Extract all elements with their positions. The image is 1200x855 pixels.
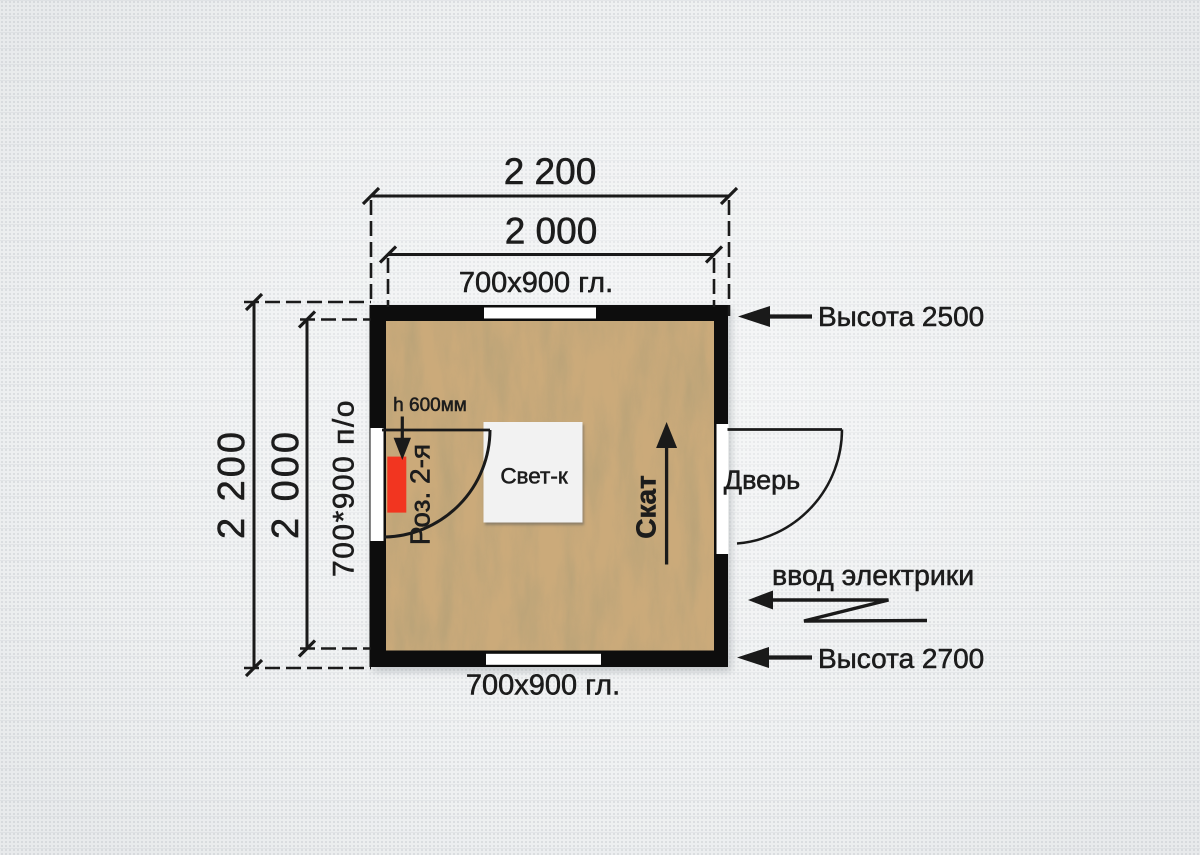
svg-text:700*900 п/о: 700*900 п/о [328,399,361,577]
svg-text:Дверь: Дверь [724,465,800,495]
svg-text:Роз. 2-я: Роз. 2-я [405,444,436,545]
svg-text:2 200: 2 200 [504,151,597,192]
svg-text:700x900 гл.: 700x900 гл. [459,267,613,299]
svg-text:Высота 2700: Высота 2700 [818,643,984,674]
svg-text:h 600мм: h 600мм [393,395,467,416]
svg-text:Свет-к: Свет-к [500,464,568,489]
svg-text:700x900 гл.: 700x900 гл. [466,670,620,702]
svg-text:2 200: 2 200 [211,429,253,539]
svg-text:ввод электрики: ввод электрики [772,560,974,592]
svg-text:2 000: 2 000 [505,211,598,252]
svg-text:Скат: Скат [631,475,662,539]
svg-text:2 000: 2 000 [265,429,307,539]
svg-text:Высота 2500: Высота 2500 [818,301,984,332]
